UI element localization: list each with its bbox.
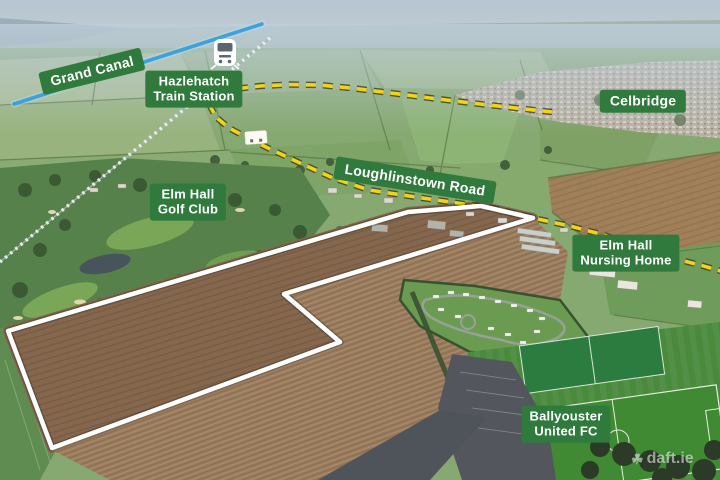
shamrock-icon: ☘ [631, 452, 644, 466]
label-ballyouster-united-fc: Ballyouster United FC [521, 406, 610, 443]
label-line2: Train Station [153, 89, 234, 104]
label-text: Celbridge [610, 93, 676, 110]
white-building [245, 130, 268, 145]
label-line1: Elm Hall [580, 238, 671, 253]
label-celbridge: Celbridge [600, 90, 686, 113]
label-elm-hall-nursing-home: Elm Hall Nursing Home [572, 235, 679, 272]
label-line2: Golf Club [158, 202, 218, 217]
watermark-text: daft.ie [647, 450, 694, 468]
label-line1: Hazlehatch [153, 74, 234, 89]
label-elm-hall-golf-club: Elm Hall Golf Club [150, 184, 226, 221]
label-line2: United FC [529, 424, 602, 439]
label-line1: Ballyouster [529, 409, 602, 424]
daft-watermark: ☘ daft.ie [631, 450, 694, 468]
label-line1: Elm Hall [158, 187, 218, 202]
horizon-haze [0, 24, 720, 134]
label-line2: Nursing Home [580, 253, 671, 268]
label-hazlehatch-train-station: Hazlehatch Train Station [145, 71, 242, 108]
aerial-photo: Grand Canal Hazlehatch Train Station Cel… [0, 0, 720, 480]
